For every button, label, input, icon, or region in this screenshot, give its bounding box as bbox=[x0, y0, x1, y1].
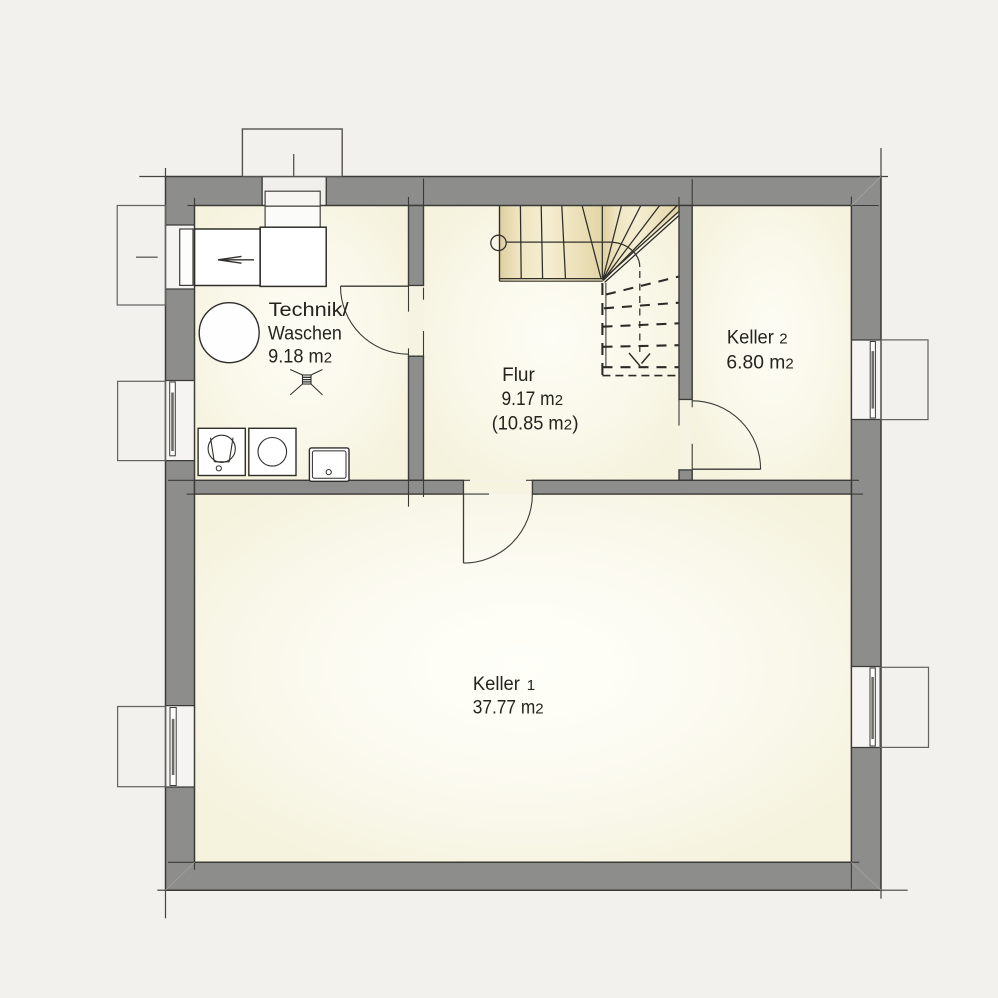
svg-text:Flur: Flur bbox=[502, 365, 535, 386]
svg-text:9.17 m: 9.17 m bbox=[502, 389, 555, 410]
svg-text:Keller: Keller bbox=[473, 674, 521, 695]
svg-text:Technik/: Technik/ bbox=[269, 300, 350, 321]
svg-text:(10.85 m: (10.85 m bbox=[492, 414, 564, 435]
svg-text:): ) bbox=[572, 414, 578, 435]
svg-text:1: 1 bbox=[527, 677, 535, 694]
svg-text:2: 2 bbox=[535, 701, 543, 718]
svg-text:9.18 m: 9.18 m bbox=[268, 346, 324, 367]
svg-text:6.80 m: 6.80 m bbox=[726, 353, 785, 374]
svg-text:Waschen: Waschen bbox=[268, 324, 342, 345]
svg-text:2: 2 bbox=[555, 392, 563, 409]
svg-text:2: 2 bbox=[324, 349, 332, 366]
svg-text:Keller: Keller bbox=[727, 328, 775, 349]
svg-text:37.77 m: 37.77 m bbox=[473, 698, 536, 719]
svg-text:2: 2 bbox=[564, 417, 572, 434]
svg-text:2: 2 bbox=[785, 356, 793, 373]
svg-text:2: 2 bbox=[779, 331, 787, 348]
